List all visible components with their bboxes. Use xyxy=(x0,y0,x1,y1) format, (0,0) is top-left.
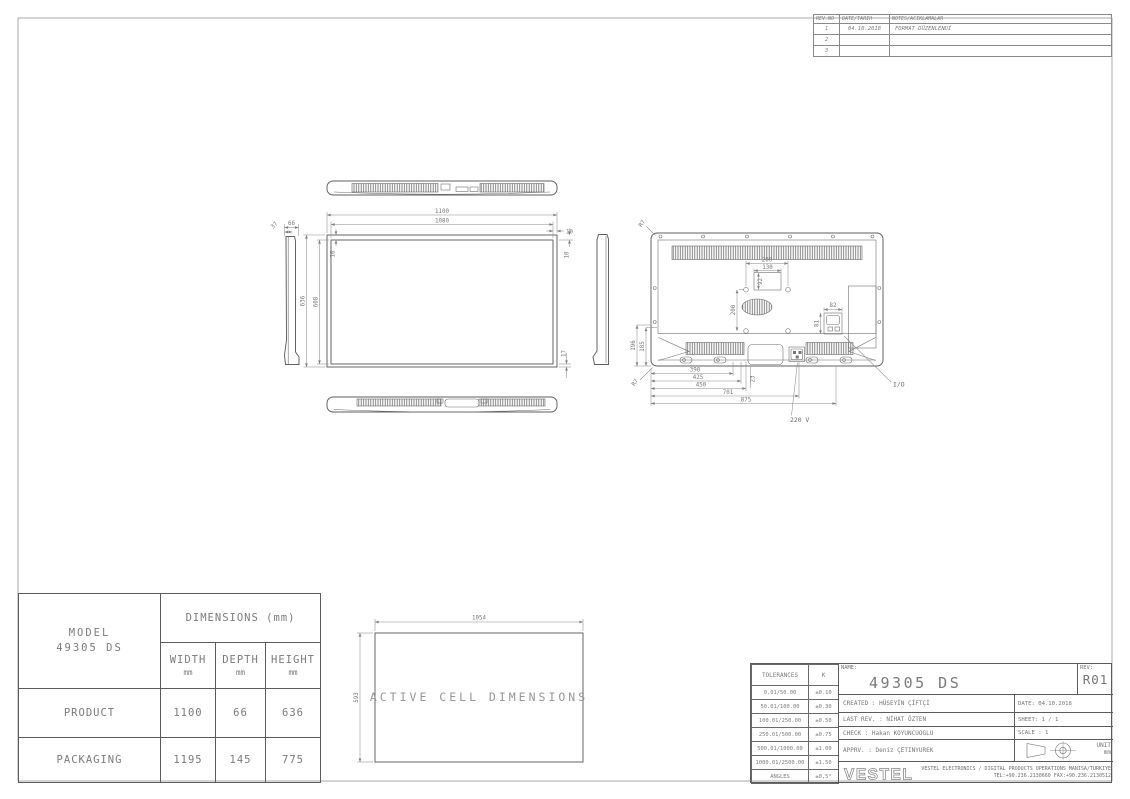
active-cell-label: ACTIVE CELL DIMENSIONS xyxy=(370,690,588,704)
rev-date-header: DATE/TARIH xyxy=(840,15,890,24)
check-cell: CHECK : Hakan KOYUNCUOGLU xyxy=(838,726,1014,739)
dim-rear-701: 701 xyxy=(723,390,734,396)
tolerances-header: TOLERANCES xyxy=(752,665,809,686)
dim-side-depth-front: 37 xyxy=(270,221,280,231)
rev-no-header: REV.NO xyxy=(814,15,840,24)
svg-text:VESTEL: VESTEL xyxy=(844,767,913,784)
dim-radius-top: R7 xyxy=(638,219,647,229)
revision-table: REV.NO DATE/TARIH NOTES/ACIKLAMALAR 1 04… xyxy=(813,14,1112,57)
rev-label: REV: xyxy=(1078,664,1113,671)
checked-by: CHECK : Hakan KOYUNCUOGLU xyxy=(843,730,933,737)
revision-row: 1 04.10.2018 FORMAT DÜZENLENDİ xyxy=(814,24,1112,35)
rev-date: 04.10.2018 xyxy=(840,24,890,35)
company-address: VESTEL ELECTRONICS / DIGITAL PRODUCTS OP… xyxy=(921,766,1111,779)
rev-date xyxy=(840,46,890,57)
dim-front-bezel-top-left: 10 xyxy=(331,250,337,257)
rev-notes-header: NOTES/ACIKLAMALAR xyxy=(890,15,1112,24)
projection-cell: UNIT mm xyxy=(1014,739,1113,761)
dim-radius-bottom: R7 xyxy=(631,378,640,388)
dim-rear-196: 196 xyxy=(631,340,637,351)
last-rev-by: LAST REV. : NİHAT ÖZTEN xyxy=(843,716,926,723)
dim-front-height-outer: 636 xyxy=(301,295,307,306)
revision-row: 2 xyxy=(814,35,1112,46)
side-view-right xyxy=(593,235,609,365)
product-width: 1100 xyxy=(161,689,216,738)
rev-no: 1 xyxy=(814,24,840,35)
sheet-cell: SHEET: 1 / 1 xyxy=(1014,712,1113,726)
packaging-row-label: PACKAGING xyxy=(19,738,161,783)
rev-notes xyxy=(890,35,1112,46)
drawing-sheet: { "colors": {"background": "#ffffff", "l… xyxy=(0,0,1130,799)
date-cell: DATE: 04.10.2018 xyxy=(1014,694,1113,712)
product-depth: 66 xyxy=(216,689,266,738)
active-cell-view: 1054 593 ACTIVE CELL DIMENSIONS xyxy=(354,616,588,763)
dim-front-width-inner: 1080 xyxy=(435,219,449,225)
packaging-height: 775 xyxy=(266,738,321,783)
dim-side-depth-total: 66 xyxy=(288,221,295,227)
unit-box: UNIT mm xyxy=(1097,742,1111,756)
scale-value: SCALE : 1 xyxy=(1018,730,1048,736)
created-by: CREATED : HÜSEYİN ÇİFTÇİ xyxy=(843,700,930,707)
dim-cell-width: 1054 xyxy=(472,616,486,622)
dim-rear-875: 875 xyxy=(741,398,752,404)
dim-vesa-height-inner: 92 xyxy=(758,278,764,285)
table-row: PACKAGING 1195 145 775 xyxy=(19,738,321,783)
date-value: DATE: 04.10.2018 xyxy=(1018,701,1072,707)
product-row-label: PRODUCT xyxy=(19,689,161,738)
drawing-name: 49305 DS xyxy=(869,674,1077,692)
dim-rear-23: 23 xyxy=(751,375,757,382)
dim-io-height: 81 xyxy=(814,320,820,327)
rev-notes: FORMAT DÜZENLENDİ xyxy=(890,24,1112,35)
dim-front-width-outer: 1100 xyxy=(435,209,449,215)
dim-front-height-inner: 608 xyxy=(314,296,320,307)
rev-notes xyxy=(890,46,1112,57)
dim-rear-425: 425 xyxy=(693,375,704,381)
dim-front-bezel-top-right: 10 xyxy=(565,251,571,258)
col-height-header: HEIGHTmm xyxy=(266,643,321,689)
power-callout: 220 V xyxy=(790,416,809,424)
dim-rear-450: 450 xyxy=(696,383,707,389)
dimensions-header: DIMENSIONS (mm) xyxy=(161,594,321,643)
revision-table-header: REV.NO DATE/TARIH NOTES/ACIKLAMALAR xyxy=(814,15,1112,24)
side-view-left: 66 37 xyxy=(270,221,299,365)
tolerances-table: TOLERANCES K 0.01/50.00±0.10 50.01/100.0… xyxy=(751,664,839,784)
dim-cell-height: 593 xyxy=(354,692,360,703)
approved-by: APPRV. : Deniz ÇETINYUREK xyxy=(843,747,933,754)
unit-label: UNIT xyxy=(1097,742,1111,749)
revision-row: 3 xyxy=(814,46,1112,57)
apprv-cell: APPRV. : Deniz ÇETINYUREK xyxy=(838,739,1014,761)
created-cell: CREATED : HÜSEYİN ÇİFTÇİ xyxy=(838,694,1014,712)
packaging-depth: 145 xyxy=(216,738,266,783)
rear-view: 200 130 92 200 82 81 xyxy=(631,219,905,424)
rev-no: 2 xyxy=(814,35,840,46)
projection-symbol-icon xyxy=(1019,740,1089,761)
rear-speaker-cutout xyxy=(742,299,772,315)
table-row: PRODUCT 1100 66 636 xyxy=(19,689,321,738)
io-callout: I/O xyxy=(893,381,905,389)
col-width-header: WIDTHmm xyxy=(161,643,216,689)
dim-vesa-width-inner: 130 xyxy=(762,265,773,271)
dim-io-width: 82 xyxy=(830,303,837,309)
name-box: NAME: 49305 DS xyxy=(838,664,1077,694)
model-label: MODEL xyxy=(19,626,160,641)
col-depth-header: DEPTHmm xyxy=(216,643,266,689)
sheet-value: SHEET: 1 / 1 xyxy=(1018,717,1058,723)
rev-value: R01 xyxy=(1078,672,1113,687)
product-height: 636 xyxy=(266,689,321,738)
name-label: NAME: xyxy=(839,664,1077,671)
last-rev-cell: LAST REV. : NİHAT ÖZTEN xyxy=(838,712,1014,726)
vestel-logo: VESTEL xyxy=(842,763,930,784)
title-block: TOLERANCES K 0.01/50.00±0.10 50.01/100.0… xyxy=(750,663,1112,783)
dim-vesa-width: 200 xyxy=(762,258,773,264)
top-view xyxy=(327,181,557,195)
packaging-width: 1195 xyxy=(161,738,216,783)
model-cell: MODEL 49305 DS xyxy=(19,594,161,689)
model-dimensions-table: MODEL 49305 DS DIMENSIONS (mm) WIDTHmm D… xyxy=(18,593,321,783)
bottom-view xyxy=(327,397,557,412)
dim-rear-390: 390 xyxy=(690,368,701,374)
rev-box: REV: R01 xyxy=(1077,664,1113,694)
front-view: 1100 1080 636 608 10 10 10 17 xyxy=(301,209,574,378)
dim-front-bezel-bottom: 17 xyxy=(562,350,568,357)
rev-no: 3 xyxy=(814,46,840,57)
company-cell: VESTEL VESTEL ELECTRONICS / DIGITAL PROD… xyxy=(838,761,1113,784)
rev-date xyxy=(840,35,890,46)
dim-vesa-height: 200 xyxy=(731,304,737,315)
scale-cell: SCALE : 1 xyxy=(1014,726,1113,739)
rear-io-panel xyxy=(849,286,877,348)
dim-rear-185: 185 xyxy=(640,341,646,352)
tolerances-k-header: K xyxy=(809,665,839,686)
unit-value: mm xyxy=(1097,749,1111,756)
model-value: 49305 DS xyxy=(19,641,160,656)
